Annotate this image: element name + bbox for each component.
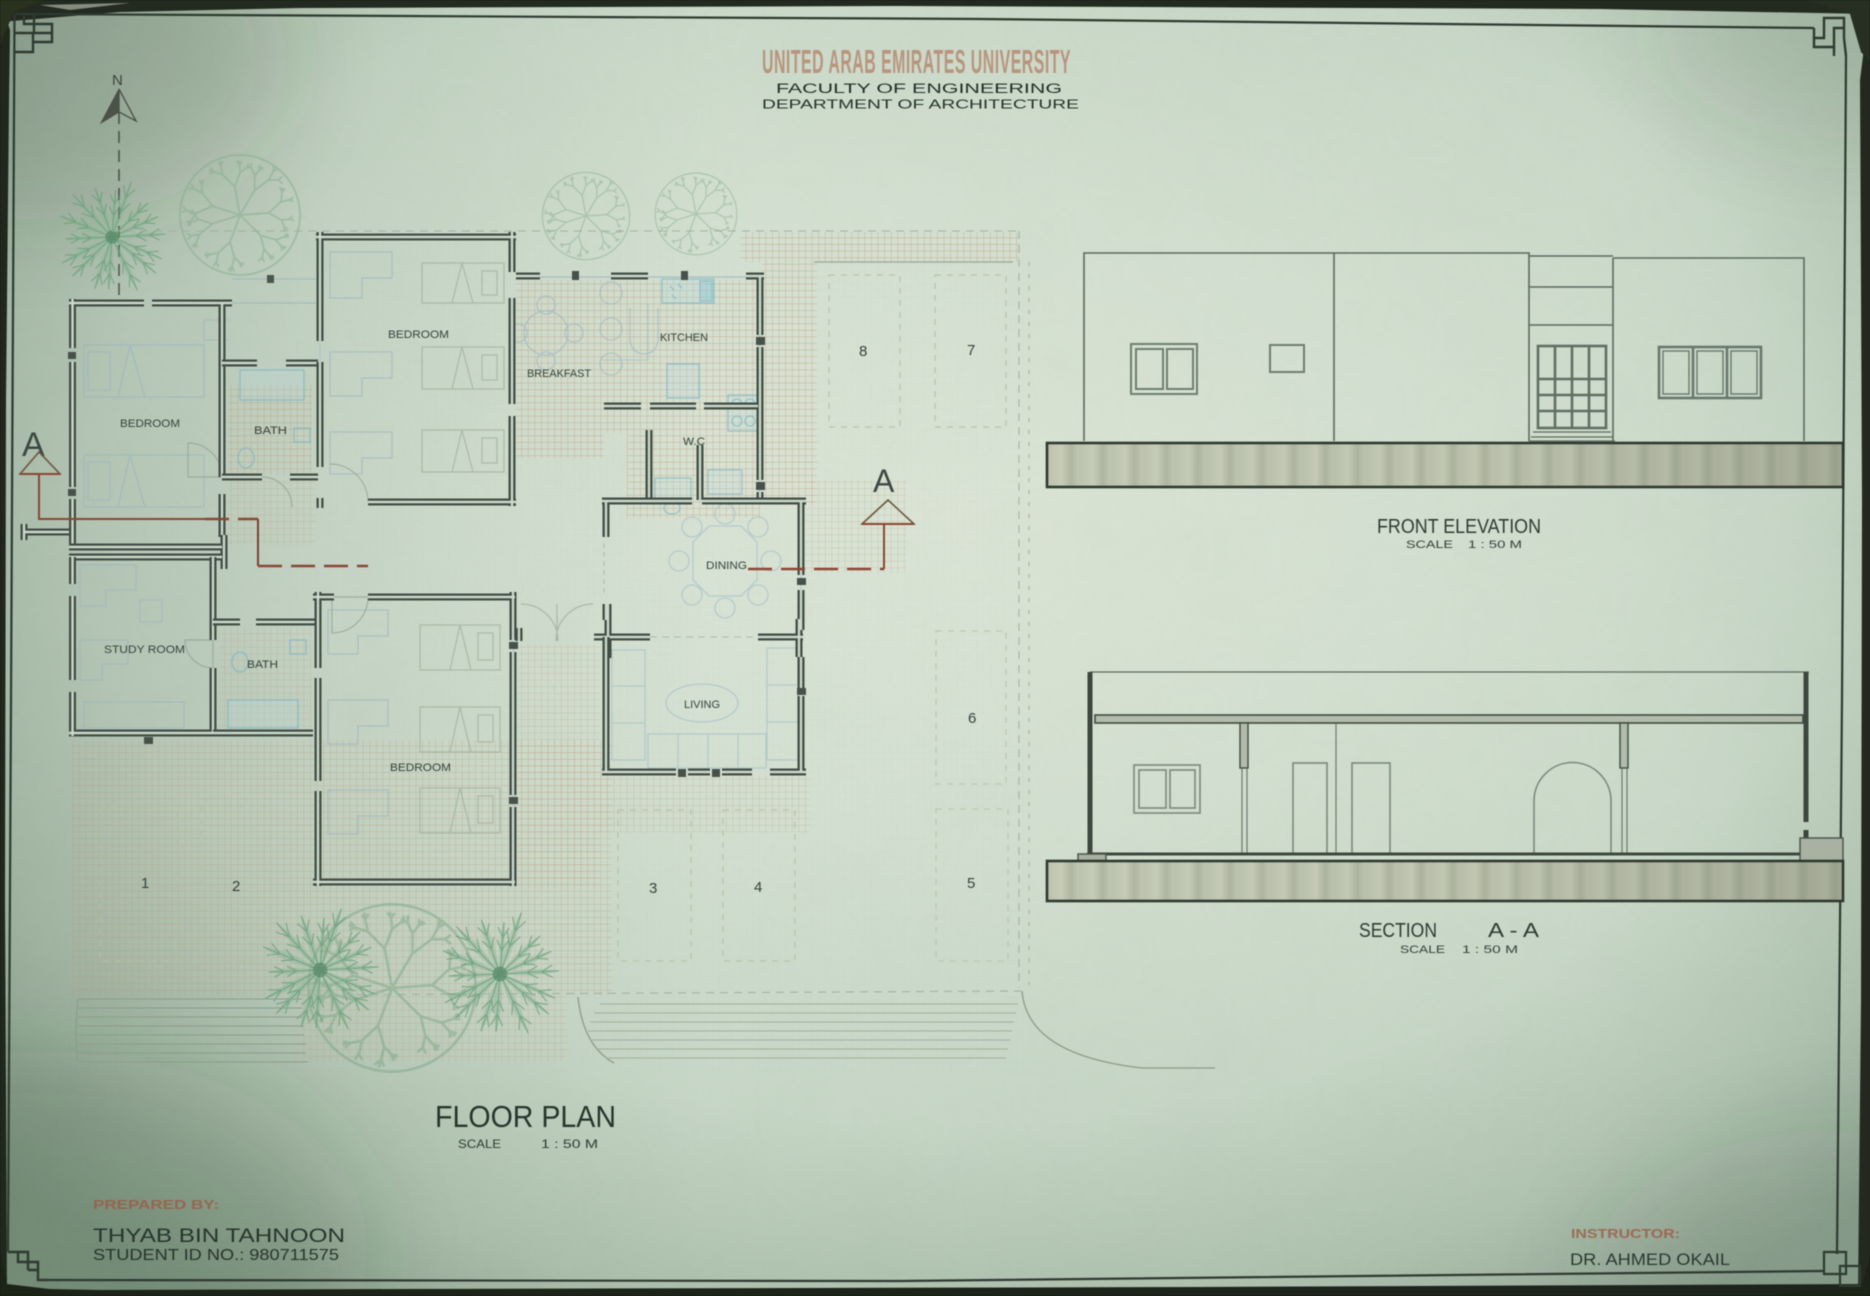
svg-text:KITCHEN: KITCHEN (660, 332, 708, 344)
svg-text:FLOOR PLAN: FLOOR PLAN (435, 1099, 616, 1134)
svg-text:SCALE: SCALE (1400, 944, 1445, 956)
svg-text:BREAKFAST: BREAKFAST (527, 368, 591, 380)
svg-text:BEDROOM: BEDROOM (120, 418, 180, 430)
svg-text:3: 3 (649, 880, 657, 897)
svg-text:BATH: BATH (247, 659, 278, 671)
svg-text:8: 8 (859, 343, 867, 360)
svg-text:A: A (873, 463, 895, 499)
svg-text:BATH: BATH (254, 425, 287, 437)
svg-text:6: 6 (968, 710, 976, 727)
svg-text:W.C: W.C (683, 436, 705, 448)
svg-text:SECTION: SECTION (1359, 920, 1437, 942)
svg-text:BEDROOM: BEDROOM (388, 329, 449, 341)
svg-text:FACULTY OF ENGINEERING: FACULTY OF ENGINEERING (776, 81, 1062, 96)
svg-text:4: 4 (754, 879, 762, 896)
svg-text:FRONT ELEVATION: FRONT ELEVATION (1377, 516, 1541, 538)
svg-text:INSTRUCTOR:: INSTRUCTOR: (1571, 1227, 1680, 1241)
svg-text:BEDROOM: BEDROOM (390, 762, 451, 774)
svg-text:SCALE: SCALE (1406, 539, 1453, 551)
svg-text:1: 1 (141, 875, 149, 892)
svg-text:THYAB BIN TAHNOON: THYAB BIN TAHNOON (93, 1226, 345, 1247)
svg-text:STUDY ROOM: STUDY ROOM (104, 644, 185, 656)
svg-text:STUDENT ID NO.: 980711575: STUDENT ID NO.: 980711575 (93, 1247, 339, 1264)
svg-text:1 : 50 M: 1 : 50 M (541, 1137, 598, 1151)
svg-text:A - A: A - A (1488, 920, 1540, 942)
svg-text:DINING: DINING (706, 560, 747, 572)
svg-text:SCALE: SCALE (458, 1137, 501, 1151)
svg-text:LIVING: LIVING (684, 699, 720, 711)
svg-text:N: N (112, 72, 123, 89)
svg-text:5: 5 (967, 875, 975, 892)
svg-text:UNITED ARAB EMIRATES UNIVERSIT: UNITED ARAB EMIRATES UNIVERSITY (762, 43, 1071, 80)
svg-text:7: 7 (967, 342, 975, 359)
svg-text:2: 2 (232, 878, 240, 895)
svg-text:1 : 50 M: 1 : 50 M (1462, 944, 1518, 956)
svg-text:PREPARED BY:: PREPARED BY: (93, 1198, 219, 1212)
svg-text:DR. AHMED OKAIL: DR. AHMED OKAIL (1570, 1250, 1730, 1269)
svg-text:1 : 50 M: 1 : 50 M (1468, 539, 1522, 551)
svg-text:DEPARTMENT OF ARCHITECTURE: DEPARTMENT OF ARCHITECTURE (762, 98, 1079, 112)
